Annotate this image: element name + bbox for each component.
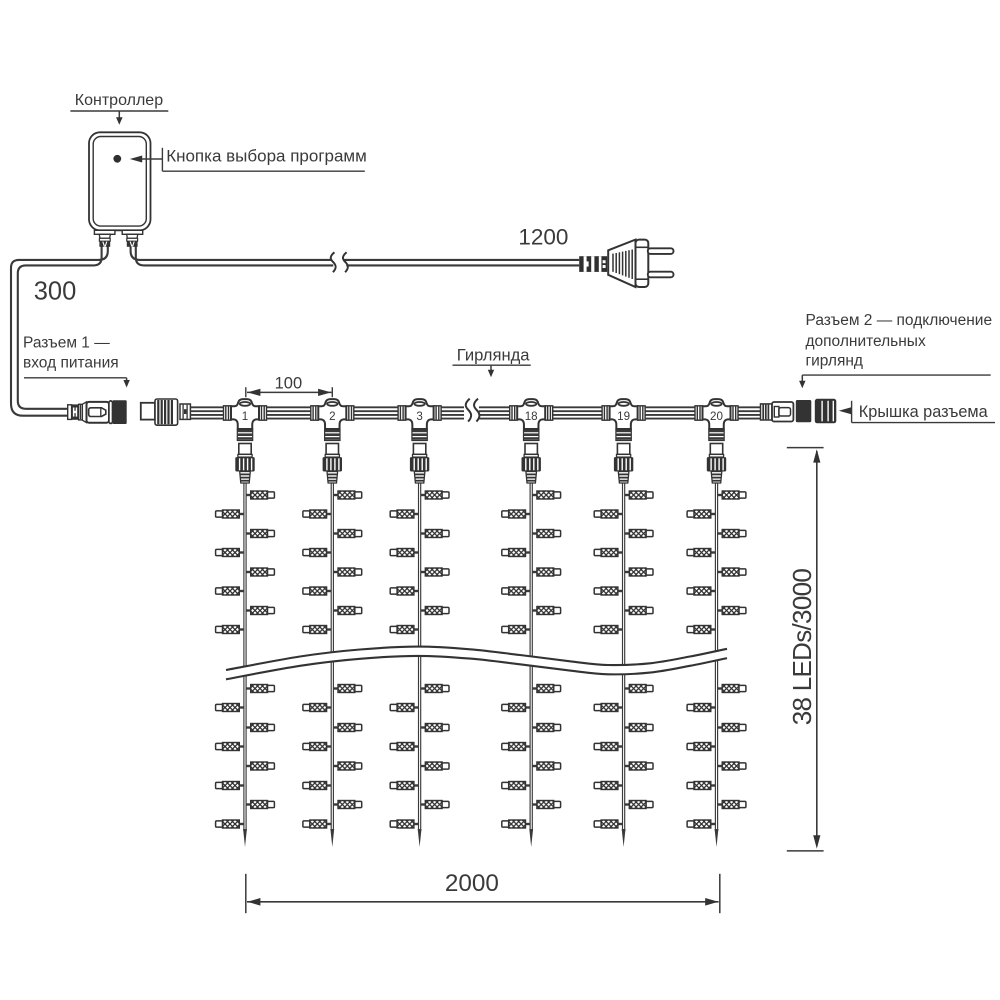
svg-text:Кнопка выбора программ: Кнопка выбора программ xyxy=(166,147,367,166)
svg-text:Разъем 2 — подключение: Разъем 2 — подключение xyxy=(806,312,993,329)
svg-text:300: 300 xyxy=(34,277,77,305)
svg-text:гирлянд: гирлянд xyxy=(806,352,863,369)
svg-text:дополнительных: дополнительных xyxy=(806,333,926,350)
svg-text:Крышка разъема: Крышка разъема xyxy=(859,403,989,421)
svg-text:100: 100 xyxy=(275,374,303,392)
svg-text:2: 2 xyxy=(329,410,335,423)
svg-text:18: 18 xyxy=(525,410,538,423)
svg-text:вход питания: вход питания xyxy=(23,355,119,372)
svg-text:Разъем 1 —: Разъем 1 — xyxy=(23,334,110,351)
svg-text:3: 3 xyxy=(416,410,422,423)
svg-text:2000: 2000 xyxy=(445,870,499,897)
svg-text:20: 20 xyxy=(710,410,723,423)
svg-text:1200: 1200 xyxy=(518,224,568,249)
svg-text:19: 19 xyxy=(617,410,630,423)
svg-text:38 LEDs/3000: 38 LEDs/3000 xyxy=(787,569,817,726)
svg-text:1: 1 xyxy=(242,410,248,423)
svg-text:Гирлянда: Гирлянда xyxy=(457,346,530,365)
svg-text:Контроллер: Контроллер xyxy=(75,92,163,109)
